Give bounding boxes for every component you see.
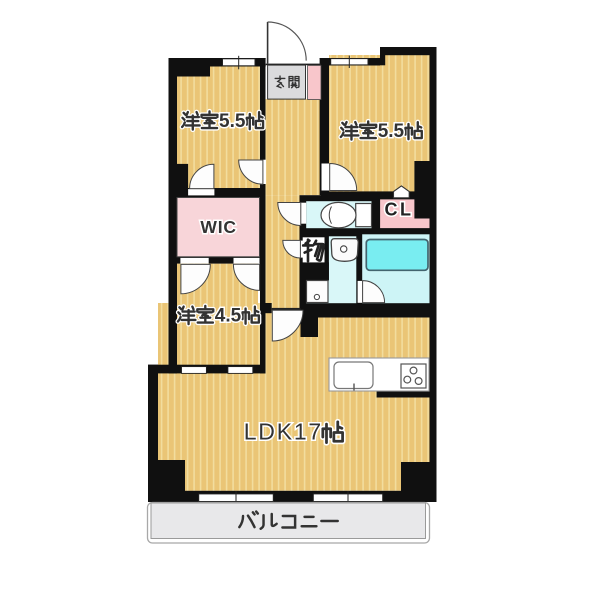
svg-text:5.5: 5.5	[378, 121, 405, 142]
svg-text:CL: CL	[385, 200, 414, 220]
svg-text:WIC: WIC	[200, 217, 236, 237]
svg-text:LDK17: LDK17	[244, 419, 323, 445]
svg-text:5.5: 5.5	[219, 111, 246, 132]
svg-text:4.5: 4.5	[215, 306, 242, 327]
